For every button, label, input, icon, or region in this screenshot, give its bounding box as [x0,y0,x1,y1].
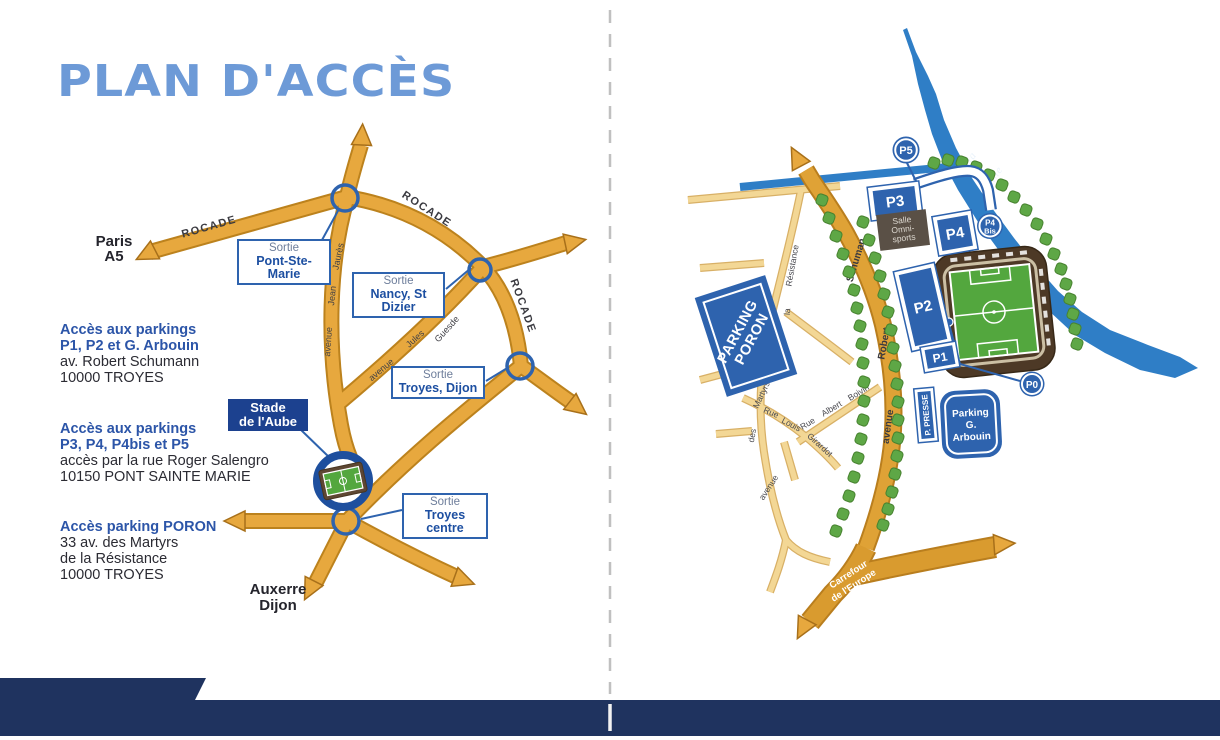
access1-heading1: Accès aux parkings [60,322,310,338]
jaures-jean: Jean [326,285,338,305]
parking-p0-badge: P0 [1020,372,1045,397]
p3-label: P3 [885,192,905,211]
stade-line1: Stade [228,401,308,415]
arbouin-line1: Parking [952,407,989,420]
arbouin-line3: Arbouin [952,431,991,444]
access-info-parking-poron: Accès parking PORON 33 av. des Martyrs d… [60,519,310,583]
paris-line1: Paris [86,234,142,249]
label-la: la [782,308,793,316]
access1-heading2: P1, P2 et G. Arbouin [60,338,310,354]
p0-label: P0 [1026,380,1039,391]
access2-line2: 10150 PONT SAINTE MARIE [60,469,310,485]
access2-line1: accès par la rue Roger Salengro [60,453,310,469]
exit3-name: Troyes, Dijon [396,382,480,395]
parking-presse-badge: P. PRESSE [914,387,939,443]
destination-auxerre: Auxerre Dijon [238,582,318,614]
parking-arbouin-badge: Parking G. Arbouin [939,388,1002,459]
exit4-name: Troyes centre [407,509,483,535]
access1-line2: 10000 TROYES [60,370,310,386]
avenue-north-arrow [783,143,811,171]
jaures-avenue: avenue [322,327,334,357]
auxerre-line1: Auxerre [238,582,318,598]
access3-line3: 10000 TROYES [60,567,310,583]
access3-line1: 33 av. des Martyrs [60,535,310,551]
exit1-name: Pont-Ste-Marie [242,255,326,281]
page-title: PLAN D'ACCÈS [57,56,455,107]
parking-p4-badge: P4 [932,210,978,256]
exit-box-troyes-centre: Sortie Troyes centre [402,493,488,539]
arrow-north [352,123,373,145]
stadium-left-map [317,455,369,507]
label-avenue-martyrs: avenue [757,473,781,502]
access3-line2: de la Résistance [60,551,310,567]
exit-box-nancy-st-dizier: Sortie Nancy, St Dizier [352,272,445,318]
p1-label: P1 [932,349,949,365]
parking-p4bis-badge: P4 Bis [977,213,1003,239]
arrow-east [563,230,588,254]
salle-omnisports: Salle Omni- sports [876,209,930,251]
stade-line2: de l'Aube [228,415,308,429]
p4bis-line2: Bis [984,227,996,236]
parking-p1-badge: P1 [920,341,960,373]
label-des: des [746,428,758,443]
paris-line2: A5 [86,249,142,264]
auxerre-line2: Dijon [238,598,318,614]
parking-p5-badge: P5 [893,137,920,164]
p5-label: P5 [899,145,912,157]
access1-line1: av. Robert Schumann [60,354,310,370]
p4-label: P4 [945,224,967,244]
destination-paris: Paris A5 [86,234,142,264]
access2-heading2: P3, P4, P4bis et P5 [60,437,310,453]
carrefour-east-arrow [993,533,1015,554]
stade-de-laube-label: Stade de l'Aube [228,399,308,431]
access3-heading1: Accès parking PORON [60,519,310,535]
access-info-parkings-p1-p2: Accès aux parkings P1, P2 et G. Arbouin … [60,322,310,386]
exit-box-pont-ste-marie: Sortie Pont-Ste-Marie [237,239,331,285]
exit2-name: Nancy, St Dizier [357,288,440,314]
plan-acces-page: la Seine Schuman Robert avenue Résistanc… [0,0,1220,740]
arbouin-line2: G. [966,420,977,432]
exit-box-troyes-dijon: Sortie Troyes, Dijon [391,366,485,399]
